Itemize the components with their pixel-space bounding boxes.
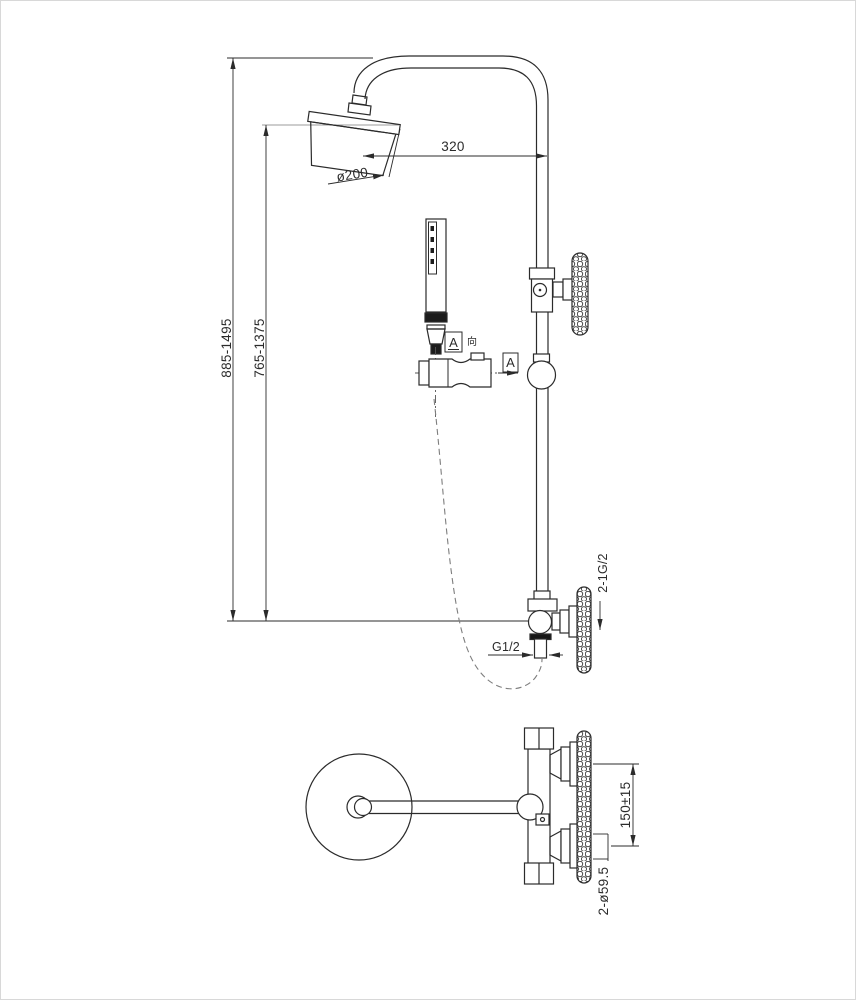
valve-outlet-pipe [535,639,547,658]
bracket-arm-1 [553,282,563,297]
holder-on-rail [528,354,556,389]
dim-g12-label: G1/2 [492,640,520,654]
dim-200-label: ø200 [335,165,369,185]
rail-holder-ring [528,361,556,389]
holder-end-cap [419,361,429,385]
inlet-nut-top [550,749,561,779]
riser-outer-line [354,56,548,597]
hand-shower-handle-cone [427,329,445,344]
holder-body [429,359,491,387]
dim-320-label: 320 [441,139,464,154]
inlet-body-bottom [561,829,570,863]
head-center-extension [389,129,400,177]
head-joint-inner [355,799,372,816]
height-dimensions: 885-1495 765-1375 [219,58,529,621]
view-a-letter: A [506,355,515,370]
top-view: 150±15 2-ø59.5 [306,728,639,915]
shower-hose [434,399,542,689]
bracket-pivot-dot [539,289,542,292]
head-connector [348,95,371,115]
lower-valve [528,587,591,673]
technical-drawing: 885-1495 765-1375 320 ø200 [1,1,856,1001]
bracket-collar [530,268,555,279]
inlet-connectors [550,731,591,883]
wall-escutcheon-strip [577,731,591,883]
arm-bracket [536,814,549,825]
dim-59-label: 2-ø59.5 [596,867,611,916]
connector-lower [348,103,371,115]
dim-wall-inlets: 2-1G/2 [596,553,610,630]
section-a-direction-char: 向 [467,335,477,348]
inlet-nut-bottom [550,831,561,861]
valve-collar [528,599,557,611]
dim-escutcheon: 2-ø59.5 [593,834,611,915]
gooseneck-and-riser [354,56,548,597]
front-view: 885-1495 765-1375 320 ø200 [219,56,610,689]
dim-150-label: 150±15 [618,782,633,829]
holder-tab [471,353,484,360]
slider-holder [415,353,497,387]
drawing-page: 885-1495 765-1375 320 ø200 [0,0,856,1000]
dim-rail-height-label: 765-1375 [252,318,267,377]
dim-inlets-label: 2-1G/2 [596,553,610,592]
hand-shower-hose-nut [431,344,441,354]
lower-wall-flange [577,587,591,673]
dim-arm-length: 320 [363,129,547,177]
upper-wall-bracket [530,253,589,335]
valve-ball [529,611,552,634]
valve-arm-1 [552,613,560,630]
hand-shower-nozzles [431,226,435,264]
inlet-body-top [561,747,570,781]
dim-outlet-thread: G1/2 [488,640,563,655]
section-a-letter: A [449,335,458,350]
dim-overall-height-label: 885-1495 [219,318,234,377]
valve-body-top-view [517,728,554,884]
upper-wall-flange [572,253,588,335]
valve-arm-2 [560,610,569,633]
hand-shower-grip-ring [425,313,447,322]
